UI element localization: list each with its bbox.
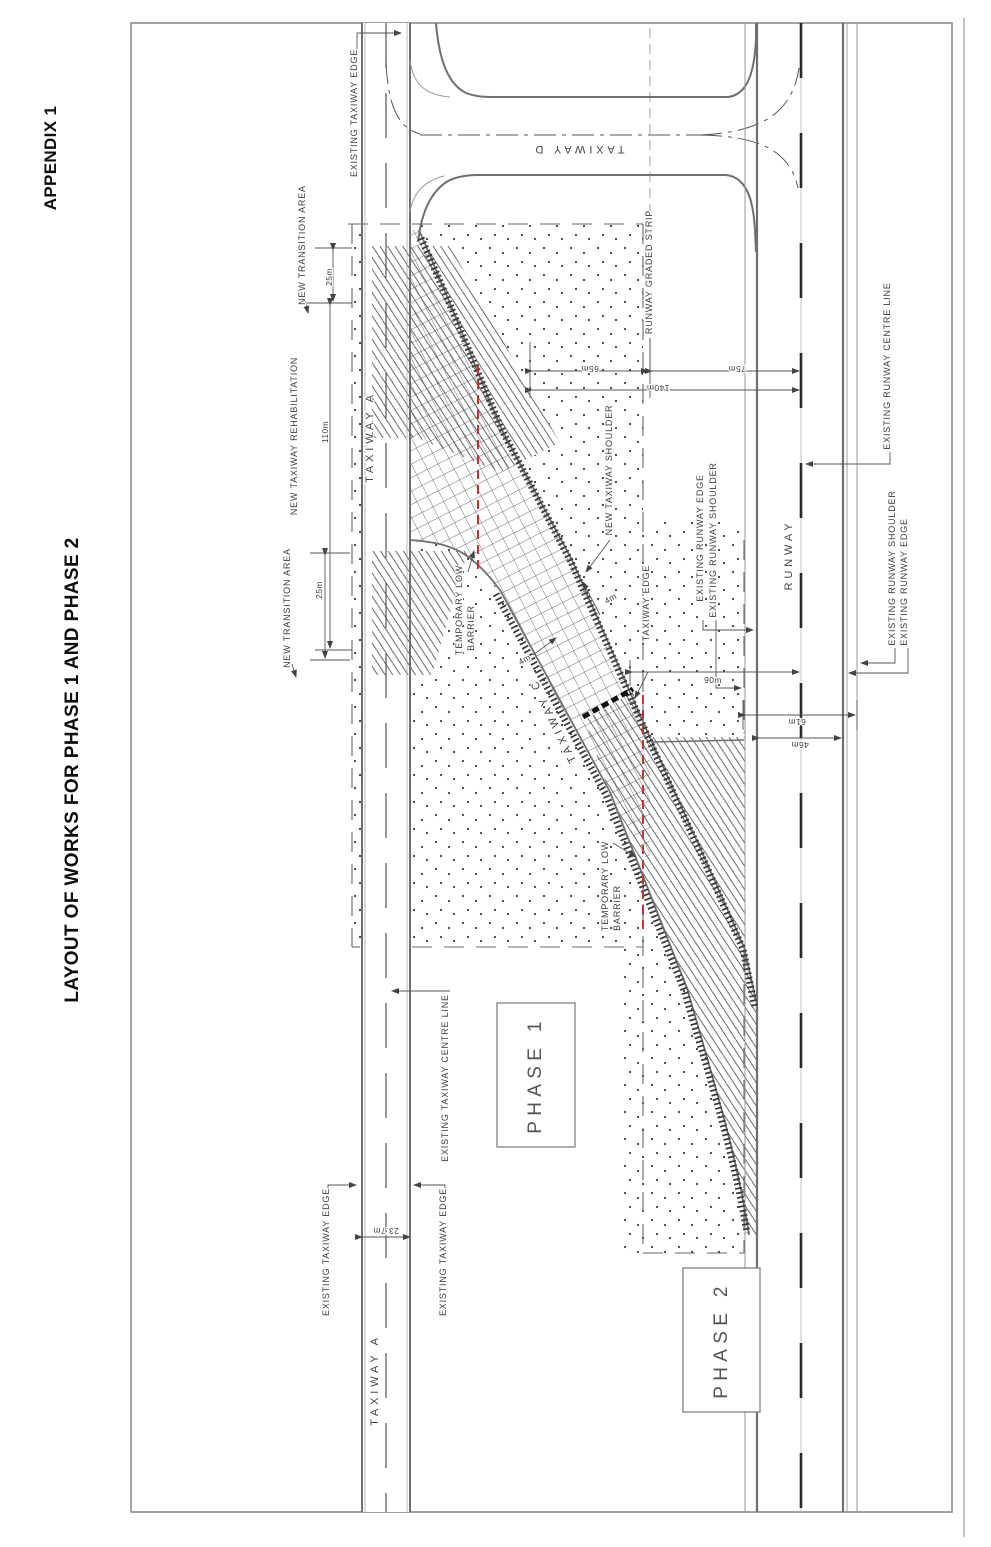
label-runway-graded-strip: RUNWAY GRADED STRIP [644, 210, 654, 334]
label-existing-runway-shoulder-mid: EXISTING RUNWAY SHOULDER [708, 462, 718, 617]
dim-140m: 140m [647, 383, 670, 393]
appendix-title: APPENDIX 1 [41, 106, 60, 211]
dim-23-7m: 23.7m [373, 1226, 399, 1236]
dim-46m: 46m [791, 740, 809, 750]
label-temporary-low-barrier-2-line2: BARRIER [612, 885, 622, 931]
label-taxiway-a-top: TAXIWAY A [364, 391, 376, 483]
dim-110m: 110m [320, 421, 330, 443]
label-temporary-low-barrier-1-line1: TEMPORARY LOW [454, 565, 464, 655]
drawing-title: LAYOUT OF WORKS FOR PHASE 1 AND PHASE 2 [62, 537, 83, 1002]
label-existing-runway-edge-right: EXISTING RUNWAY EDGE [899, 518, 909, 646]
dim-90m: 90m [704, 675, 722, 685]
dim-61m: 61m [788, 717, 806, 727]
label-new-taxiway-shoulder: NEW TAXIWAY SHOULDER [604, 405, 614, 536]
dim-75m: 75m [728, 364, 746, 374]
dim-25m-1: 25m [324, 268, 334, 286]
label-taxiway-d: TAXIWAY D [532, 143, 625, 155]
dim-65m: 65m [581, 364, 599, 374]
label-temporary-low-barrier-2-line1: TEMPORARY LOW [600, 841, 610, 931]
label-taxiway-edge: TAXIWAY EDGE [641, 565, 651, 641]
label-new-taxiway-rehabilitation: NEW TAXIWAY REHABILITATION [289, 357, 299, 515]
label-existing-taxiway-edge-top: EXISTING TAXIWAY EDGE [349, 49, 359, 177]
label-existing-taxiway-edge-right: EXISTING TAXIWAY EDGE [438, 1188, 448, 1316]
label-new-transition-area-1: NEW TRANSITION AREA [297, 185, 307, 305]
phase-1-label: PHASE 1 [525, 1016, 546, 1134]
document-page: APPENDIX 1 LAYOUT OF WORKS FOR PHASE 1 A… [0, 0, 991, 1547]
label-existing-taxiway-centre-line: EXISTING TAXIWAY CENTRE LINE [440, 994, 450, 1162]
label-runway: RUNWAY [783, 520, 795, 591]
label-existing-runway-shoulder-right: EXISTING RUNWAY SHOULDER [887, 490, 897, 645]
label-temporary-low-barrier-1-line2: BARRIER [466, 605, 476, 651]
dim-25m-2: 25m [314, 581, 324, 599]
label-existing-runway-centre-line: EXISTING RUNWAY CENTRE LINE [882, 282, 892, 449]
label-existing-runway-edge-mid: EXISTING RUNWAY EDGE [695, 474, 705, 602]
phase-2-label: PHASE 2 [711, 1281, 732, 1399]
label-taxiway-a-bottom: TAXIWAY A [369, 1334, 381, 1426]
layout-drawing-canvas: APPENDIX 1 LAYOUT OF WORKS FOR PHASE 1 A… [0, 0, 991, 1547]
label-existing-taxiway-edge-left: EXISTING TAXIWAY EDGE [321, 1188, 331, 1316]
label-new-transition-area-2: NEW TRANSITION AREA [282, 548, 292, 668]
